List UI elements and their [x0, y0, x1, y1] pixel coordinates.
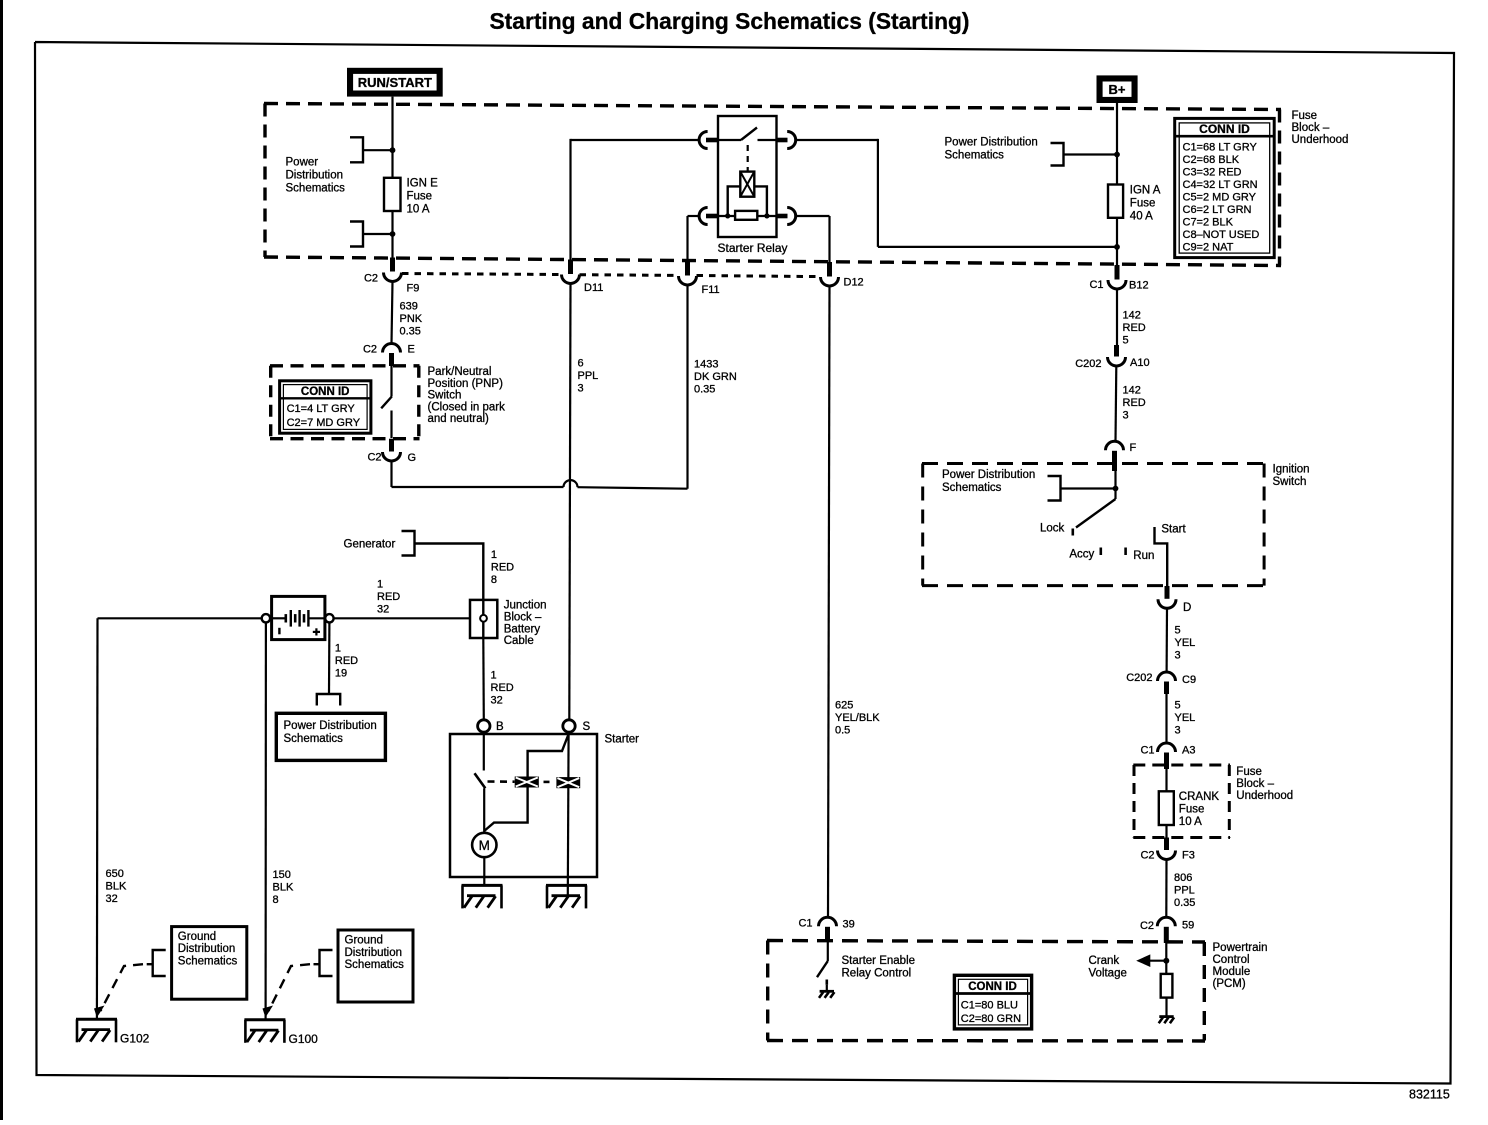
svg-text:Module: Module — [1213, 966, 1251, 978]
svg-text:6: 6 — [578, 357, 584, 369]
svg-text:Block –: Block – — [504, 612, 542, 624]
svg-text:142: 142 — [1123, 309, 1141, 321]
svg-text:40 A: 40 A — [1130, 210, 1153, 222]
svg-text:C202: C202 — [1126, 672, 1152, 684]
svg-text:C8–NOT USED: C8–NOT USED — [1183, 229, 1260, 241]
svg-text:0.35: 0.35 — [400, 325, 421, 337]
svg-text:CONN ID: CONN ID — [301, 386, 350, 398]
svg-text:Battery: Battery — [504, 623, 541, 635]
svg-text:C9=2 NAT: C9=2 NAT — [1183, 242, 1234, 254]
svg-text:1: 1 — [335, 642, 341, 654]
svg-text:B+: B+ — [1109, 82, 1126, 97]
svg-text:M: M — [479, 838, 490, 853]
svg-text:PNK: PNK — [400, 313, 423, 325]
svg-text:Block –: Block – — [1292, 122, 1330, 134]
svg-text:Starter Relay: Starter Relay — [718, 241, 788, 255]
svg-text:3: 3 — [578, 382, 584, 394]
svg-text:5: 5 — [1123, 334, 1129, 346]
svg-text:0.35: 0.35 — [1174, 897, 1195, 909]
svg-text:3: 3 — [1175, 724, 1181, 736]
svg-text:PPL: PPL — [1174, 884, 1195, 896]
svg-text:A10: A10 — [1130, 357, 1150, 369]
svg-text:Starter: Starter — [605, 734, 640, 746]
svg-text:Schematics: Schematics — [942, 482, 1002, 494]
svg-text:10 A: 10 A — [1179, 816, 1202, 828]
svg-text:142: 142 — [1123, 384, 1141, 396]
svg-text:C3=32 RED: C3=32 RED — [1183, 166, 1242, 178]
svg-text:RED: RED — [491, 682, 514, 694]
svg-text:IGN A: IGN A — [1130, 185, 1161, 197]
svg-text:Switch: Switch — [428, 390, 462, 402]
svg-text:C2: C2 — [1140, 850, 1154, 862]
svg-text:59: 59 — [1182, 920, 1194, 932]
svg-text:RED: RED — [491, 561, 514, 573]
svg-text:C9: C9 — [1182, 674, 1196, 686]
svg-text:32: 32 — [491, 694, 503, 706]
svg-text:Powertrain: Powertrain — [1213, 942, 1268, 954]
svg-text:C2=80 GRN: C2=80 GRN — [961, 1013, 1021, 1025]
svg-text:B: B — [496, 721, 504, 733]
svg-text:Fuse: Fuse — [1236, 766, 1262, 778]
svg-text:G: G — [408, 452, 417, 464]
svg-text:Relay Control: Relay Control — [842, 967, 912, 979]
svg-text:Distribution: Distribution — [178, 943, 236, 955]
svg-text:19: 19 — [335, 667, 347, 679]
svg-text:Ground: Ground — [345, 935, 383, 947]
svg-text:YEL/BLK: YEL/BLK — [835, 712, 880, 724]
svg-text:Ground: Ground — [178, 931, 216, 943]
svg-text:Control: Control — [1213, 954, 1250, 966]
svg-text:YEL: YEL — [1175, 712, 1196, 724]
svg-text:39: 39 — [843, 919, 855, 931]
svg-text:RED: RED — [1123, 322, 1146, 334]
svg-text:Schematics: Schematics — [178, 955, 238, 967]
svg-text:YEL: YEL — [1175, 637, 1196, 649]
svg-text:Schematics: Schematics — [345, 959, 405, 971]
svg-text:1: 1 — [491, 669, 497, 681]
svg-text:Position (PNP): Position (PNP) — [428, 378, 504, 390]
svg-text:3: 3 — [1123, 409, 1129, 421]
svg-text:and neutral): and neutral) — [428, 413, 490, 425]
svg-text:F3: F3 — [1182, 850, 1195, 862]
svg-text:10 A: 10 A — [407, 203, 430, 215]
svg-text:639: 639 — [400, 300, 418, 312]
svg-text:A3: A3 — [1182, 745, 1195, 757]
svg-text:Power Distribution: Power Distribution — [284, 720, 377, 732]
svg-text:F9: F9 — [407, 283, 420, 295]
svg-text:8: 8 — [491, 574, 497, 586]
svg-text:Crank: Crank — [1089, 955, 1120, 967]
svg-text:D11: D11 — [584, 282, 603, 294]
svg-text:CONN ID: CONN ID — [1199, 122, 1250, 136]
svg-text:Ignition: Ignition — [1273, 464, 1310, 476]
svg-text:RED: RED — [1123, 397, 1146, 409]
svg-text:1: 1 — [377, 578, 383, 590]
svg-text:C1=68 LT GRY: C1=68 LT GRY — [1183, 141, 1258, 153]
svg-text:0.5: 0.5 — [835, 724, 850, 736]
svg-text:C1=4 LT GRY: C1=4 LT GRY — [287, 403, 356, 415]
svg-text:F: F — [1130, 442, 1137, 454]
svg-text:806: 806 — [1174, 872, 1192, 884]
svg-text:Fuse: Fuse — [1292, 110, 1318, 122]
svg-text:3: 3 — [1175, 649, 1181, 661]
svg-text:8: 8 — [273, 894, 279, 906]
svg-text:C2: C2 — [363, 343, 377, 355]
svg-text:Power Distribution: Power Distribution — [945, 137, 1038, 149]
svg-text:Fuse: Fuse — [407, 191, 433, 203]
svg-text:RED: RED — [377, 591, 400, 603]
svg-text:C4=32 LT GRN: C4=32 LT GRN — [1183, 179, 1258, 191]
svg-text:0.35: 0.35 — [694, 383, 715, 395]
svg-text:C202: C202 — [1075, 358, 1101, 370]
svg-text:D12: D12 — [844, 277, 864, 289]
svg-text:Power: Power — [286, 157, 319, 169]
svg-text:C2: C2 — [364, 273, 378, 285]
svg-text:Schematics: Schematics — [284, 733, 344, 745]
svg-text:Accy: Accy — [1069, 549, 1094, 561]
svg-text:IGN E: IGN E — [407, 178, 439, 190]
svg-text:650: 650 — [106, 868, 124, 880]
svg-text:832115: 832115 — [1409, 1088, 1450, 1102]
svg-text:1: 1 — [491, 549, 497, 561]
svg-text:(Closed in park: (Closed in park — [428, 401, 506, 413]
svg-text:Underhood: Underhood — [1236, 790, 1293, 802]
svg-text:C2=68 BLK: C2=68 BLK — [1183, 154, 1240, 166]
svg-text:C2=7 MD GRY: C2=7 MD GRY — [287, 417, 361, 429]
svg-text:CRANK: CRANK — [1179, 791, 1220, 803]
svg-text:C1=80 BLU: C1=80 BLU — [961, 999, 1018, 1011]
svg-text:C7=2 BLK: C7=2 BLK — [1183, 217, 1234, 229]
svg-text:BLK: BLK — [106, 880, 127, 892]
svg-text:Start: Start — [1161, 524, 1186, 536]
svg-text:Power Distribution: Power Distribution — [942, 469, 1035, 481]
svg-text:Underhood: Underhood — [1292, 134, 1349, 146]
svg-text:G100: G100 — [289, 1032, 319, 1046]
svg-text:C5=2 MD GRY: C5=2 MD GRY — [1183, 192, 1257, 204]
svg-text:Lock: Lock — [1040, 523, 1065, 535]
svg-text:D: D — [1183, 602, 1191, 614]
svg-text:(PCM): (PCM) — [1213, 978, 1246, 990]
svg-text:1433: 1433 — [694, 358, 718, 370]
svg-text:C1: C1 — [798, 918, 812, 930]
svg-text:PPL: PPL — [578, 370, 599, 382]
svg-text:S: S — [583, 721, 591, 733]
svg-text:Starter Enable: Starter Enable — [842, 955, 916, 967]
svg-text:5: 5 — [1175, 624, 1181, 636]
svg-text:Run: Run — [1133, 550, 1154, 562]
svg-text:625: 625 — [835, 699, 853, 711]
svg-text:RUN/START: RUN/START — [358, 75, 432, 90]
svg-text:32: 32 — [106, 893, 118, 905]
svg-text:Schematics: Schematics — [945, 150, 1005, 162]
svg-text:Fuse: Fuse — [1130, 198, 1156, 210]
svg-text:Distribution: Distribution — [345, 947, 403, 959]
svg-text:150: 150 — [273, 869, 291, 881]
svg-text:C2: C2 — [367, 452, 381, 464]
svg-text:C1: C1 — [1140, 745, 1154, 757]
svg-text:RED: RED — [335, 655, 358, 667]
svg-text:B12: B12 — [1129, 280, 1149, 292]
svg-text:Fuse: Fuse — [1179, 803, 1205, 815]
svg-text:32: 32 — [377, 603, 389, 615]
svg-text:Distribution: Distribution — [286, 170, 344, 182]
svg-text:C6=2 LT GRN: C6=2 LT GRN — [1183, 204, 1252, 216]
svg-text:C1: C1 — [1089, 279, 1103, 291]
svg-text:F11: F11 — [702, 284, 720, 296]
svg-text:Voltage: Voltage — [1089, 967, 1127, 979]
svg-text:Switch: Switch — [1273, 476, 1307, 488]
svg-text:Cable: Cable — [504, 635, 534, 647]
svg-text:CONN ID: CONN ID — [968, 981, 1017, 993]
svg-text:C2: C2 — [1140, 920, 1154, 932]
svg-text:Schematics: Schematics — [286, 182, 346, 194]
svg-text:Starting and Charging Schemati: Starting and Charging Schematics (Starti… — [489, 8, 969, 34]
svg-text:DK GRN: DK GRN — [694, 371, 737, 383]
svg-text:BLK: BLK — [273, 881, 294, 893]
svg-text:5: 5 — [1175, 699, 1181, 711]
svg-text:E: E — [408, 343, 415, 355]
svg-text:G102: G102 — [120, 1032, 150, 1046]
svg-text:Block –: Block – — [1236, 778, 1274, 790]
svg-text:Junction: Junction — [504, 600, 547, 612]
svg-text:Generator: Generator — [344, 539, 396, 551]
svg-text:Park/Neutral: Park/Neutral — [428, 366, 492, 378]
